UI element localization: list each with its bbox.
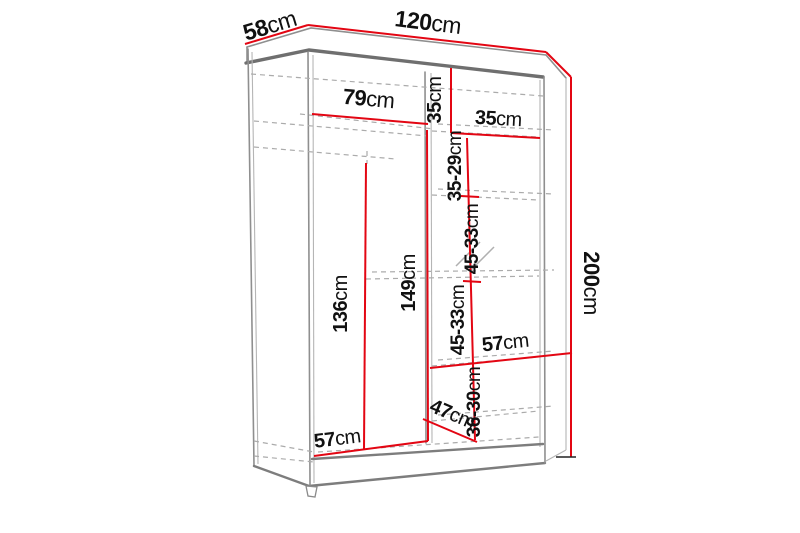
label-gap-45-33-a: 45-33cm [462,204,483,274]
label-mid-height-149: 149cm [398,254,420,312]
label-right-lower-57: 57cm [481,330,530,357]
dim-tick-shelf-2 [463,281,481,282]
left-inner-wall-2 [313,55,314,483]
label-rail-height-136: 136cm [330,275,352,333]
label-gap-45-33-b: 45-33cm [448,285,469,355]
dim-line-left-width-79 [312,114,428,124]
hanging-rail [254,147,396,159]
dim-line-mid-height-149 [427,130,428,441]
side-bottom-edge [254,466,309,486]
label-width-120: 120cm [393,5,462,39]
label-gap-35-29: 35-29cm [445,131,466,201]
label-right-top-35: 35cm [424,77,446,124]
shelf3-front [366,276,539,279]
front-top-edge [246,50,543,77]
label-right-width-35: 35cm [474,107,522,131]
floor-side-dashed-1 [254,441,314,452]
back-right-floor-edge [546,450,566,461]
lid-right-edge [546,55,566,78]
middle-partition-2 [431,73,432,443]
diagram-canvas: 58cm 120cm 200cm 79cm 35cm 35cm 35-29cm … [0,0,800,533]
ceiling-dashed [251,74,543,96]
dimension-labels: 58cm 120cm 200cm 79cm 35cm 35cm 35-29cm … [240,5,604,453]
left-top-shelf-front [254,121,428,136]
plinth-bottom-edge [309,463,545,486]
floor-side-dashed-2 [254,456,314,462]
dim-line-rail-height-136 [364,163,366,449]
dim-line-connector [546,52,571,77]
left-inner-wall [308,52,310,485]
dimension-lines [245,25,576,457]
label-left-width-79: 79cm [342,84,396,113]
label-bottom-left-57: 57cm [313,425,362,453]
label-height-200: 200cm [579,251,604,315]
wardrobe-dimension-diagram: 58cm 120cm 200cm 79cm 35cm 35cm 35-29cm … [0,0,800,533]
wardrobe-foot [306,486,317,497]
